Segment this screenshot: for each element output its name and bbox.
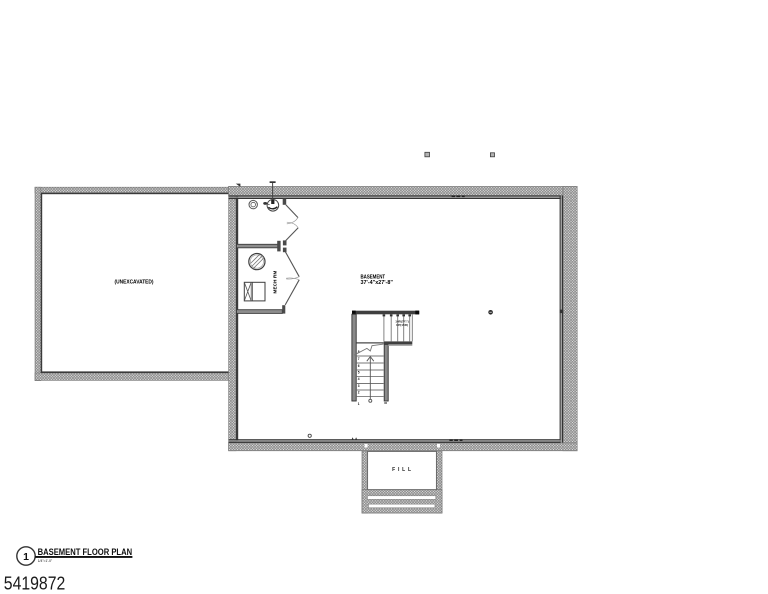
svg-text:UP(15R): UP(15R): [396, 323, 408, 327]
svg-text:5: 5: [358, 370, 360, 374]
svg-text:1: 1: [358, 402, 360, 406]
svg-text:6: 6: [358, 364, 360, 368]
svg-text:FILL: FILL: [392, 467, 414, 473]
svg-text:4: 4: [358, 377, 360, 381]
svg-text:3: 3: [358, 384, 360, 388]
svg-text:2: 2: [358, 390, 360, 394]
svg-text:7: 7: [358, 357, 360, 361]
svg-text:MECH RM: MECH RM: [272, 270, 277, 293]
svg-text:37'-4"x27'-8": 37'-4"x27'-8": [361, 280, 394, 286]
svg-text:1/4"=1'-0": 1/4"=1'-0": [38, 559, 53, 563]
svg-text:(UNEXCAVATED): (UNEXCAVATED): [115, 280, 154, 286]
svg-text:5419872: 5419872: [4, 573, 66, 594]
svg-text:1: 1: [23, 551, 29, 563]
